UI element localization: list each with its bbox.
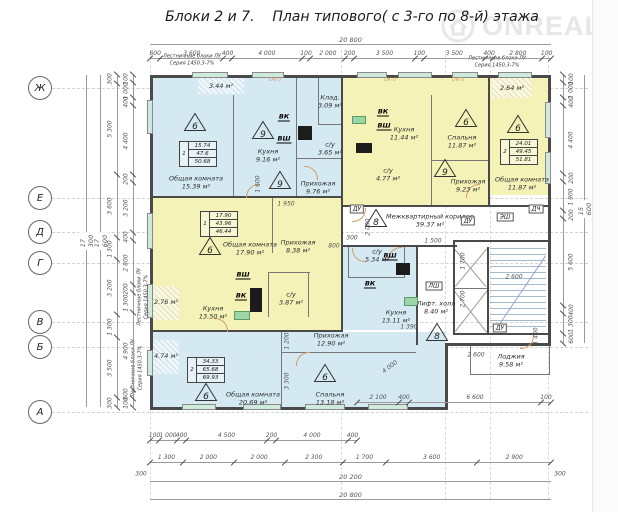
room-name: Общая комната [223, 241, 277, 249]
inner-dimension: 2 600 [505, 274, 522, 281]
inner-dimension: 2 700 [460, 290, 467, 307]
room-label: Лифт. холл8.40 м² [417, 300, 456, 317]
inner-dimension: 300 [346, 235, 357, 242]
room-label: Лоджия9.58 м² [497, 353, 524, 370]
room-name: Лифт. холл [417, 300, 456, 308]
grid-axis-circle: Б [28, 335, 52, 359]
end-dimension: 300 [554, 471, 565, 478]
wall [308, 272, 309, 317]
svg-text:6: 6 [192, 122, 198, 132]
duct-tag-du: ДУ [461, 217, 475, 226]
room-name: Прихожая [451, 178, 486, 186]
room-area: 2.64 м² [500, 84, 524, 92]
total-area: 50.68 [189, 158, 216, 166]
dimension-total-right: 15 600 [584, 75, 585, 343]
room-area: 15.39 м² [169, 183, 223, 191]
svg-text:6: 6 [463, 118, 469, 128]
vent-shaft [250, 288, 262, 312]
inner-dimension: 1 390 [400, 324, 417, 331]
inner-dimension: 1 600 [255, 175, 262, 192]
dimension-total-bottom: 20 200 [150, 481, 551, 482]
inner-dimension: 2 600 [467, 352, 484, 359]
room-area: 13.50 м² [199, 313, 227, 321]
wall [453, 240, 548, 242]
living-area: 24.01 [510, 140, 537, 148]
svg-text:6: 6 [203, 392, 209, 402]
room-label: Общая комната17.90 м² [223, 241, 277, 258]
vent-label-vk: ВК [377, 108, 389, 117]
plan-title: Блоки 2 и 7. План типового( с 3-го по 8-… [165, 9, 539, 25]
wall [268, 272, 269, 317]
axis-label: Д [36, 227, 44, 238]
window [147, 213, 153, 249]
room-area: 4.74 м² [154, 352, 178, 360]
room-label: 4.74 м² [154, 352, 178, 360]
duct-tag-du: ДУ [350, 205, 364, 214]
svg-text:9: 9 [277, 180, 283, 190]
svg-text:8: 8 [434, 332, 440, 342]
wall [431, 95, 432, 205]
living-area: 34.33 [197, 358, 224, 366]
room-name: с/у [318, 141, 342, 149]
dimension-chain-top: 6003 6004004 0001002 0002003 5001003 500… [150, 52, 551, 59]
dimension-chain-bottom-2: 1 3002 0002 0002 3001 7003 6002 900 [150, 456, 551, 463]
wall [341, 205, 551, 207]
apartment-number-triangle: 6 [454, 108, 478, 128]
window-tag: ОК-3 [269, 77, 281, 83]
wall [296, 78, 297, 196]
room-name: Прихожая [281, 239, 316, 247]
wall [455, 288, 487, 289]
kitchen-fixture [352, 116, 366, 124]
vent-shaft [298, 126, 312, 140]
room-label: Прихожая8.38 м² [281, 239, 316, 256]
room-area: 3.65 м² [318, 149, 342, 157]
room-area: 8.40 м² [417, 308, 456, 316]
room-label: с/у3.87 м² [279, 291, 303, 308]
room-name: Общая комната [169, 175, 223, 183]
room-area: 3.09 м² [318, 102, 342, 110]
inner-dimension: 1 500 [424, 238, 441, 245]
apartment-info-table: 2 24.01 49.45 51.81 [500, 139, 538, 165]
room-area: 9.16 м² [256, 156, 280, 164]
inner-dimension: 3 300 [284, 372, 291, 389]
room-area: 11.87 м² [448, 142, 477, 150]
grid-axis-circle: А [28, 400, 52, 424]
dimension-total-bottom-2: 20 800 [150, 499, 551, 500]
axis-label: Б [37, 342, 44, 353]
room-label: Прихожая12.90 м² [314, 332, 349, 349]
room-name: Общая комната [495, 176, 549, 184]
flat-area: 65.68 [197, 366, 224, 374]
wall [348, 247, 349, 278]
page-right-gutter [592, 0, 618, 512]
duct-tag-dch: ДЧ [529, 205, 544, 214]
room-name: Спальня [448, 134, 477, 142]
apartment-info-table: 1 15.74 47.6 50.68 [179, 141, 217, 167]
apartment-number-triangle: 9 [251, 120, 275, 140]
vent-label-vsh: ВШ [383, 252, 398, 261]
room-label: Общая комната15.39 м² [169, 175, 223, 192]
room-name: Кухня [390, 126, 418, 134]
dimension-chain-bottom-mid: 2 1004006 600100 [357, 396, 551, 403]
room-label: 2.64 м² [500, 84, 524, 92]
room-area: 8.38 м² [281, 247, 316, 255]
apartment-info-table: 1 17.90 43.96 46.44 [200, 211, 238, 237]
room-area: 4.77 м² [376, 175, 400, 183]
inner-dimension: 1 400 [533, 327, 540, 344]
axis-label: В [37, 317, 44, 328]
flat-area: 47.6 [189, 150, 216, 158]
room-label: с/у3.65 м² [318, 141, 342, 158]
vent-label-vsh: ВШ [377, 122, 392, 131]
apartment-number-triangle: 8 [425, 322, 449, 342]
window-tag: ОК-3 [452, 77, 464, 83]
room-name: Клад. [318, 94, 342, 102]
room-name: Спальня [316, 391, 345, 399]
dimension-chain-bottom-1: 1001 0004004 5002004 000400 [150, 434, 357, 441]
floor-plan-canvas: ONREALT Блоки 2 и 7. План типового( с 3-… [0, 0, 618, 512]
room-name: с/у [376, 167, 400, 175]
window [192, 72, 228, 78]
axis-label: Г [37, 258, 43, 269]
inner-dimension: 2 000 [365, 218, 372, 235]
grid-line [52, 412, 588, 413]
room-area: 3.87 м² [279, 299, 303, 307]
series-note: Лестничные блоки ЛУСерия 1450.3-7% [136, 268, 150, 326]
room-name: Общая комната [226, 391, 280, 399]
room-name: с/у [279, 291, 303, 299]
room-label: с/у4.77 м² [376, 167, 400, 184]
wall [488, 78, 490, 207]
duct-tag-lsh: ЛШ [426, 282, 443, 291]
inner-dimension: 1 200 [284, 332, 291, 349]
axis-label: А [37, 407, 44, 418]
room-label: Кухня9.16 м² [256, 148, 280, 165]
inner-dimension: 800 [328, 243, 339, 250]
total-area: 69.93 [197, 374, 224, 382]
window-tag: ОК-3 [384, 77, 396, 83]
apartment-number-triangle: 9 [268, 170, 292, 190]
svg-text:6: 6 [207, 246, 213, 256]
window [147, 100, 153, 134]
grid-axis-circle: Г [28, 251, 52, 275]
room-label: Клад.3.09 м² [318, 94, 342, 111]
room-area: 2.76 м² [154, 298, 178, 306]
wall [281, 332, 282, 407]
duct-tag-esh: ЭШ [497, 213, 514, 222]
room-area: 17.90 м² [223, 249, 277, 257]
vent-label-vsh: ВШ [277, 135, 292, 144]
svg-text:8: 8 [373, 218, 379, 228]
svg-text:6: 6 [322, 373, 328, 383]
wall [318, 124, 341, 125]
apartment-number-triangle: 6 [313, 363, 337, 383]
window [498, 72, 532, 78]
room-label: Спальня13.18 м² [316, 391, 345, 408]
room-label: 2.76 м² [154, 298, 178, 306]
grid-axis-circle: Д [28, 220, 52, 244]
apartment-info-table: 2 34.33 65.68 69.93 [187, 357, 225, 383]
apartment-number-triangle: 6 [198, 236, 222, 256]
apartment-rooms-count: 1 [180, 142, 189, 166]
room-label: 3.44 м² [209, 82, 233, 90]
room-name: Кухня [382, 309, 410, 317]
window [368, 404, 408, 410]
grid-axis-circle: Е [28, 186, 52, 210]
room-area: 9.23 м² [451, 186, 486, 194]
room-name: Кухня [199, 305, 227, 313]
flat-area: 49.45 [510, 148, 537, 156]
vent-shaft [356, 143, 372, 153]
vent-label-vsh: ВШ [236, 271, 251, 280]
room-area: 3.44 м² [209, 82, 233, 90]
svg-text:9: 9 [260, 130, 266, 140]
dimension-total-left-outer: 17 300 [86, 75, 87, 407]
total-area: 46.44 [210, 228, 237, 236]
room-area: 12.90 м² [314, 340, 349, 348]
dimension-chain-left-inner: 1001 0004004 4002003 2004002 8002001 300… [128, 75, 134, 407]
vent-label-vk: ВК [235, 292, 247, 301]
wall [268, 272, 310, 273]
room-label: Спальня11.87 м² [448, 134, 477, 151]
room-name: Прихожая [301, 180, 336, 188]
room-label: Кухня11.44 м² [390, 126, 418, 143]
apartment-number-triangle: 6 [194, 382, 218, 402]
room-name: Прихожая [314, 332, 349, 340]
kitchen-fixture [234, 311, 250, 320]
window [182, 404, 216, 410]
window [398, 72, 432, 78]
room-label: Кухня13.50 м² [199, 305, 227, 322]
duct-tag-du: ДУ [493, 324, 507, 333]
room-label: Прихожая9.23 м² [451, 178, 486, 195]
window [147, 350, 153, 376]
room-area: 11.44 м² [390, 134, 418, 142]
end-dimension: 300 [135, 471, 146, 478]
room-area: 9.58 м² [497, 361, 524, 369]
room-area: 9.76 м² [301, 188, 336, 196]
apartment-rooms-count: 1 [201, 212, 210, 236]
apartment-rooms-count: 2 [188, 358, 197, 382]
vent-label-vk: ВК [278, 113, 290, 122]
wall [233, 95, 234, 196]
flat-area: 43.96 [210, 220, 237, 228]
vent-label-vk: ВК [364, 280, 376, 289]
room-name: Кухня [256, 148, 280, 156]
apartment-rooms-count: 2 [501, 140, 510, 164]
room-label: Прихожая9.76 м² [301, 180, 336, 197]
stairs [490, 243, 546, 332]
total-area: 51.81 [510, 156, 537, 164]
living-area: 15.74 [189, 142, 216, 150]
apartment-number-triangle: 6 [183, 112, 207, 132]
wall [296, 158, 341, 159]
apartment-number-triangle: 9 [433, 158, 457, 178]
wall [281, 352, 416, 353]
axis-label: Е [37, 193, 43, 204]
room-name: Лоджия [497, 353, 524, 361]
room-area: 11.87 м² [495, 184, 549, 192]
window [545, 102, 551, 138]
vent-shaft [396, 263, 410, 275]
inner-dimension: 1 950 [277, 201, 294, 208]
svg-text:9: 9 [442, 168, 448, 178]
wall [348, 277, 404, 278]
dimension-chain-right: 1001 0004004 4002001 9002005 6004001 300… [558, 75, 564, 343]
room-area: 13.18 м² [316, 399, 345, 407]
dimension-total-top: 20 800 [150, 44, 551, 45]
axis-label: Ж [35, 83, 46, 94]
living-area: 17.90 [210, 212, 237, 220]
room-label: Общая комната11.87 м² [495, 176, 549, 193]
room-area: 20.69 м² [226, 399, 280, 407]
dimension-total-left-inner: 17 600 [100, 75, 101, 407]
grid-axis-circle: Ж [28, 76, 52, 100]
apartment-number-triangle: 6 [506, 114, 530, 134]
svg-text:6: 6 [515, 124, 521, 134]
window [357, 72, 387, 78]
grid-axis-circle: В [28, 310, 52, 334]
room-label: Общая комната20.69 м² [226, 391, 280, 408]
inner-dimension: 1 700 [460, 252, 467, 269]
dimension-chain-left: 3005 3003 6001 3003 2001 3003 500300 [112, 75, 118, 407]
wall [487, 247, 489, 335]
